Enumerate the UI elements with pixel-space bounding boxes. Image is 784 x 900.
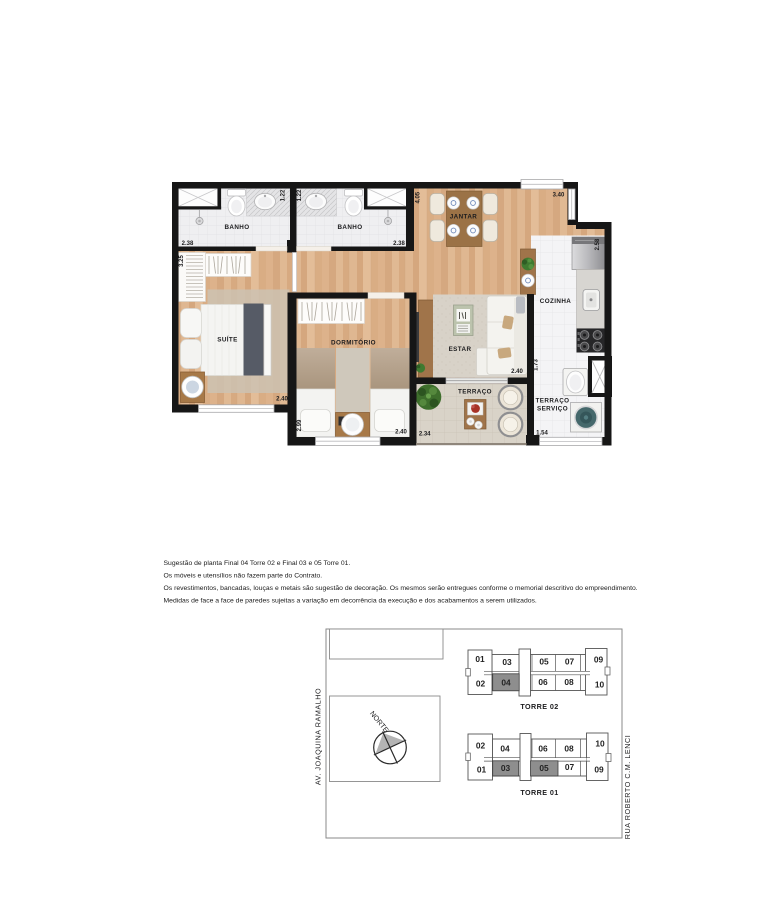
svg-text:10: 10 bbox=[595, 739, 605, 749]
svg-text:02: 02 bbox=[476, 679, 486, 689]
svg-text:2.40: 2.40 bbox=[395, 429, 407, 435]
svg-text:2.40: 2.40 bbox=[511, 369, 523, 375]
svg-text:1.22: 1.22 bbox=[281, 189, 287, 201]
svg-text:JANTAR: JANTAR bbox=[450, 214, 478, 221]
svg-text:01: 01 bbox=[475, 654, 485, 664]
svg-text:4.05: 4.05 bbox=[416, 191, 422, 203]
svg-text:AV. JOAQUINA RAMALHO: AV. JOAQUINA RAMALHO bbox=[314, 688, 323, 785]
svg-text:06: 06 bbox=[538, 744, 548, 754]
svg-text:Os revestimentos, bancadas, lo: Os revestimentos, bancadas, louças e met… bbox=[164, 585, 638, 592]
svg-text:07: 07 bbox=[565, 762, 575, 772]
svg-text:TERRAÇO: TERRAÇO bbox=[536, 398, 570, 405]
svg-text:01: 01 bbox=[477, 765, 487, 775]
svg-text:Sugestão de planta Final 04 To: Sugestão de planta Final 04 Torre 02 e F… bbox=[164, 560, 351, 567]
svg-text:RUA ROBERTO C.M. LENCI: RUA ROBERTO C.M. LENCI bbox=[623, 735, 632, 840]
svg-text:2.99: 2.99 bbox=[297, 419, 303, 431]
svg-text:09: 09 bbox=[594, 765, 604, 775]
svg-text:TERRAÇO: TERRAÇO bbox=[458, 388, 492, 395]
svg-text:06: 06 bbox=[538, 677, 548, 687]
svg-text:3.40: 3.40 bbox=[553, 193, 565, 199]
svg-text:2.38: 2.38 bbox=[393, 241, 405, 247]
svg-text:2.38: 2.38 bbox=[182, 241, 194, 247]
svg-text:08: 08 bbox=[564, 677, 574, 687]
svg-text:09: 09 bbox=[594, 655, 604, 665]
svg-text:Os móveis e utensílios não faz: Os móveis e utensílios não fazem parte d… bbox=[164, 573, 323, 580]
svg-text:1.54: 1.54 bbox=[536, 430, 548, 436]
svg-text:BANHO: BANHO bbox=[337, 224, 362, 231]
svg-text:03: 03 bbox=[502, 657, 512, 667]
svg-text:02: 02 bbox=[476, 741, 486, 751]
svg-text:05: 05 bbox=[539, 763, 549, 773]
svg-text:3.25: 3.25 bbox=[179, 255, 185, 267]
svg-text:DORMITÓRIO: DORMITÓRIO bbox=[331, 337, 376, 346]
svg-text:1.22: 1.22 bbox=[297, 189, 303, 201]
svg-text:2.40: 2.40 bbox=[276, 396, 288, 402]
svg-text:03: 03 bbox=[501, 763, 511, 773]
svg-text:SERVIÇO: SERVIÇO bbox=[537, 406, 568, 413]
svg-text:2.58: 2.58 bbox=[595, 238, 601, 250]
svg-text:1.73: 1.73 bbox=[534, 359, 540, 371]
svg-text:TORRE 02: TORRE 02 bbox=[520, 702, 558, 711]
svg-text:COZINHA: COZINHA bbox=[540, 298, 572, 305]
svg-text:04: 04 bbox=[500, 744, 510, 754]
svg-text:SUÍTE: SUÍTE bbox=[217, 335, 238, 344]
svg-text:TORRE 01: TORRE 01 bbox=[520, 788, 558, 797]
svg-text:10: 10 bbox=[595, 680, 605, 690]
svg-text:Medidas de face a face de pare: Medidas de face a face de paredes sujeit… bbox=[164, 598, 537, 605]
svg-text:08: 08 bbox=[564, 744, 574, 754]
svg-text:05: 05 bbox=[539, 657, 549, 667]
svg-text:BANHO: BANHO bbox=[224, 224, 249, 231]
svg-text:2.34: 2.34 bbox=[419, 431, 431, 437]
svg-text:07: 07 bbox=[565, 657, 575, 667]
svg-text:ESTAR: ESTAR bbox=[449, 346, 472, 353]
svg-text:04: 04 bbox=[501, 678, 511, 688]
